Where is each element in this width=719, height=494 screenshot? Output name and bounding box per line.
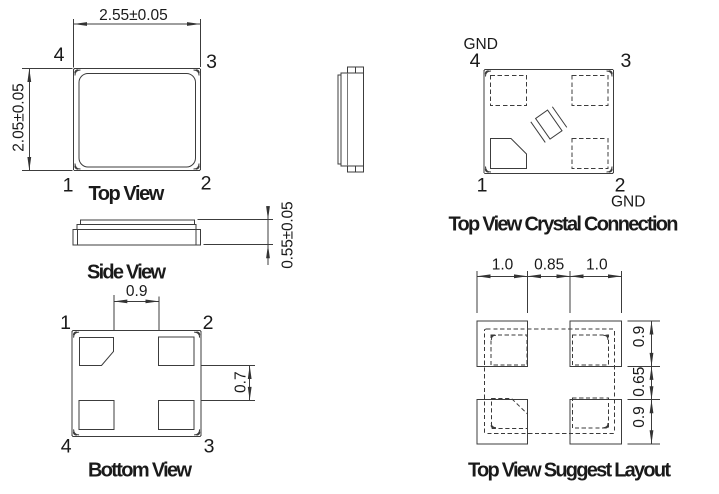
svg-text:4: 4: [61, 436, 72, 458]
svg-text:3: 3: [620, 50, 631, 72]
svg-text:2: 2: [201, 172, 212, 194]
svg-text:0.7: 0.7: [233, 371, 250, 393]
svg-text:1: 1: [63, 175, 74, 197]
svg-text:1.0: 1.0: [492, 257, 514, 274]
svg-text:1: 1: [60, 312, 71, 334]
svg-text:2.05±0.05: 2.05±0.05: [11, 83, 28, 152]
svg-text:1: 1: [477, 175, 488, 197]
svg-text:0.9: 0.9: [631, 406, 648, 428]
svg-text:1.0: 1.0: [586, 257, 608, 274]
svg-text:2: 2: [203, 312, 214, 334]
svg-text:GND: GND: [611, 194, 645, 211]
svg-text:Top View: Top View: [89, 183, 165, 205]
svg-text:4: 4: [54, 44, 65, 66]
svg-text:Side View: Side View: [87, 261, 166, 283]
svg-text:2.55±0.05: 2.55±0.05: [99, 7, 168, 24]
svg-text:0.55±0.05: 0.55±0.05: [280, 201, 297, 268]
svg-text:3: 3: [206, 51, 217, 73]
svg-text:Top View Crystal Connection: Top View Crystal Connection: [449, 214, 679, 236]
svg-text:0.85: 0.85: [534, 257, 564, 274]
svg-text:0.65: 0.65: [631, 367, 648, 397]
svg-text:Top View Suggest Layout: Top View Suggest Layout: [468, 460, 671, 482]
svg-text:0.9: 0.9: [631, 326, 648, 348]
svg-text:4: 4: [470, 50, 481, 72]
svg-text:0.9: 0.9: [126, 283, 148, 300]
svg-text:3: 3: [204, 436, 215, 458]
svg-text:Bottom View: Bottom View: [88, 460, 192, 482]
